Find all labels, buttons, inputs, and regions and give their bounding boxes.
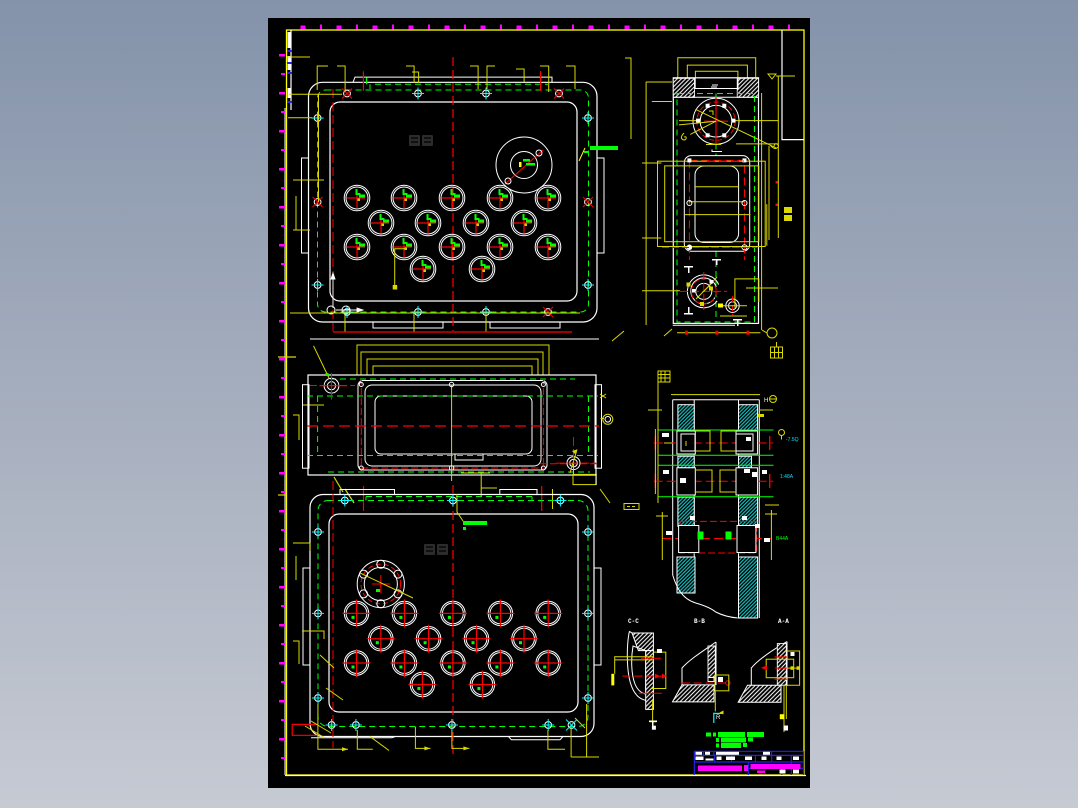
svg-text:R: R	[716, 715, 721, 721]
svg-text:B44A: B44A	[776, 536, 789, 542]
svg-text:1:48A: 1:48A	[780, 474, 794, 480]
svg-text:H: H	[764, 398, 768, 404]
svg-text:B-B: B-B	[694, 618, 705, 625]
svg-text:-7.5Q: -7.5Q	[786, 437, 799, 443]
svg-text:A-A: A-A	[778, 618, 789, 625]
svg-text:C-C: C-C	[628, 618, 639, 625]
